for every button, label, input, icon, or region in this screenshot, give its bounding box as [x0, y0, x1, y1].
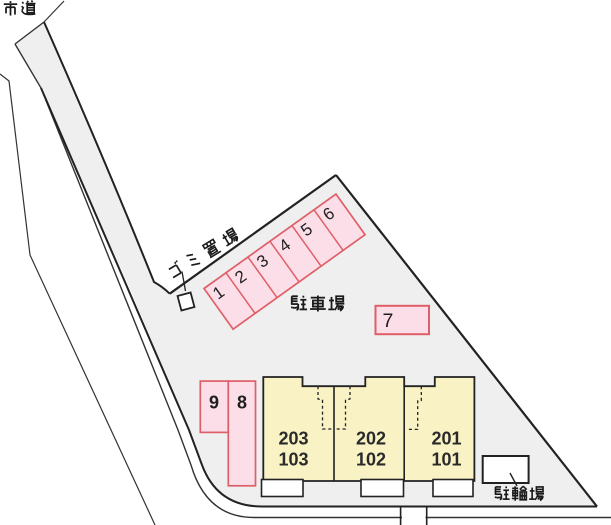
- svg-text:201: 201: [431, 429, 461, 449]
- svg-text:102: 102: [356, 449, 386, 469]
- svg-text:9: 9: [209, 393, 219, 413]
- svg-text:103: 103: [278, 449, 308, 469]
- svg-text:8: 8: [237, 393, 247, 413]
- svg-text:203: 203: [278, 429, 308, 449]
- svg-text:7: 7: [383, 310, 394, 332]
- svg-text:202: 202: [356, 429, 386, 449]
- svg-text:101: 101: [431, 449, 461, 469]
